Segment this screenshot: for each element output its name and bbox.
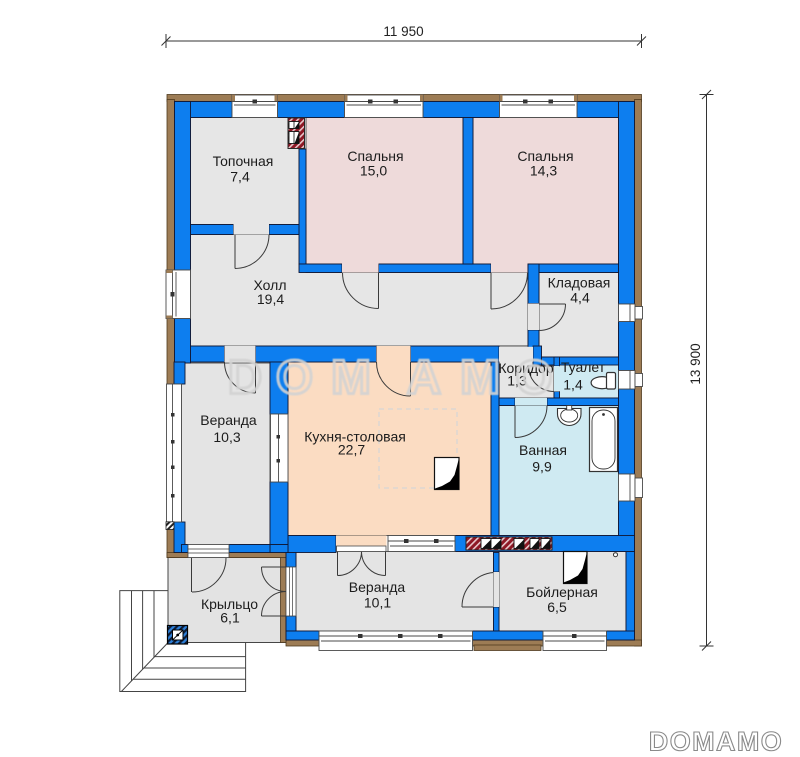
svg-text:19,4: 19,4 <box>257 291 284 307</box>
svg-text:Веранда: Веранда <box>349 579 406 595</box>
svg-text:O: O <box>515 352 552 405</box>
svg-text:Веранда: Веранда <box>200 412 257 428</box>
svg-text:10,1: 10,1 <box>364 595 391 611</box>
svg-text:D: D <box>228 352 263 405</box>
svg-text:22,7: 22,7 <box>338 442 365 458</box>
svg-text:Ванная: Ванная <box>519 442 567 458</box>
svg-text:Топочная: Топочная <box>213 153 274 169</box>
svg-text:Бойлерная: Бойлерная <box>526 584 598 600</box>
svg-text:1,4: 1,4 <box>563 377 583 393</box>
svg-text:11 950: 11 950 <box>383 24 423 39</box>
svg-text:Туалет: Туалет <box>561 359 606 375</box>
svg-text:10,3: 10,3 <box>213 429 240 445</box>
svg-text:9,9: 9,9 <box>532 459 552 475</box>
svg-text:15,0: 15,0 <box>360 163 387 179</box>
svg-text:Кладовая: Кладовая <box>548 275 611 291</box>
svg-text:M: M <box>331 352 371 405</box>
svg-text:7,4: 7,4 <box>230 169 250 185</box>
svg-text:O: O <box>276 352 313 405</box>
svg-text:DOMAMO: DOMAMO <box>649 727 783 757</box>
svg-text:A: A <box>407 352 442 405</box>
svg-text:13 900: 13 900 <box>688 343 703 384</box>
svg-text:6,1: 6,1 <box>220 610 240 626</box>
svg-text:14,3: 14,3 <box>530 163 557 179</box>
svg-text:6,5: 6,5 <box>547 599 567 615</box>
svg-text:4,4: 4,4 <box>570 290 590 306</box>
svg-text:M: M <box>460 352 500 405</box>
